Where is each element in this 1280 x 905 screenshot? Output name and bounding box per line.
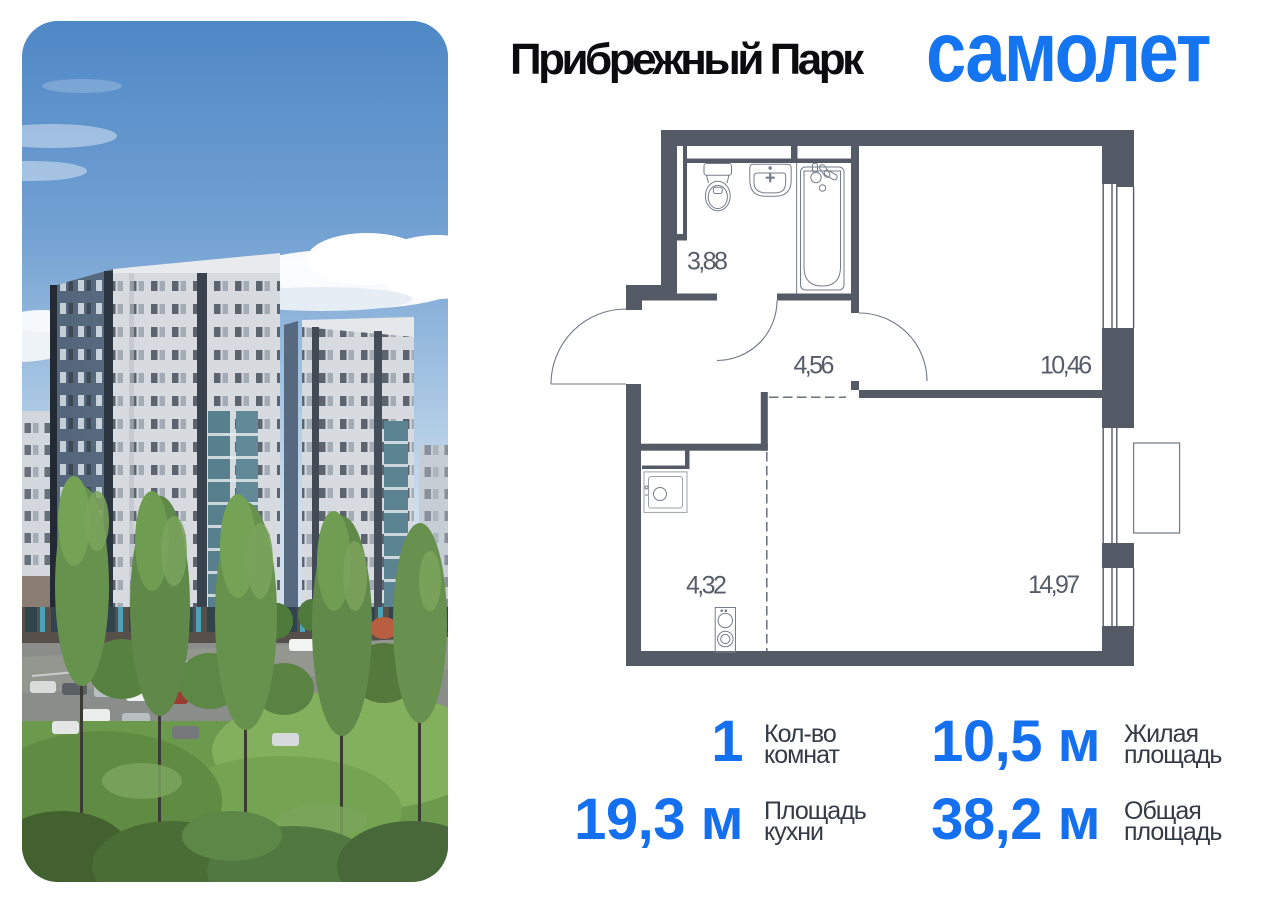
svg-text:3,88: 3,88 <box>687 248 727 276</box>
svg-text:4,56: 4,56 <box>794 351 834 379</box>
svg-text:10,46: 10,46 <box>1040 351 1091 379</box>
svg-text:4,32: 4,32 <box>686 572 726 600</box>
svg-text:14,97: 14,97 <box>1028 571 1079 599</box>
